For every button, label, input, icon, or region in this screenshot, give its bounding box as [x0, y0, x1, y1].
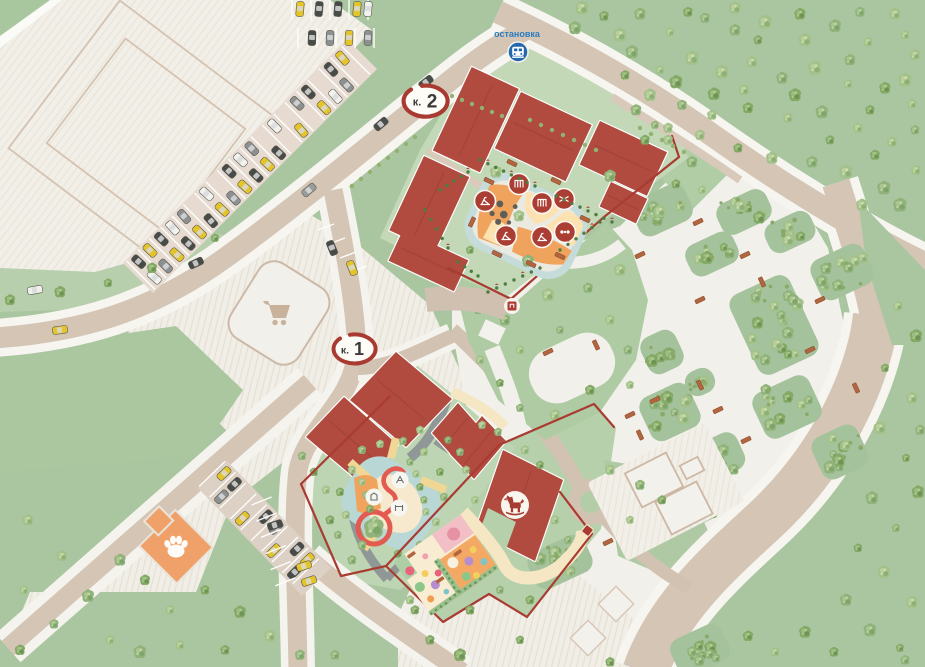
svg-text:остановка: остановка: [494, 29, 541, 39]
svg-text:к.: к.: [341, 345, 349, 357]
svg-text:1: 1: [354, 339, 364, 359]
svg-text:2: 2: [427, 92, 438, 113]
svg-text:к.: к.: [413, 97, 422, 109]
